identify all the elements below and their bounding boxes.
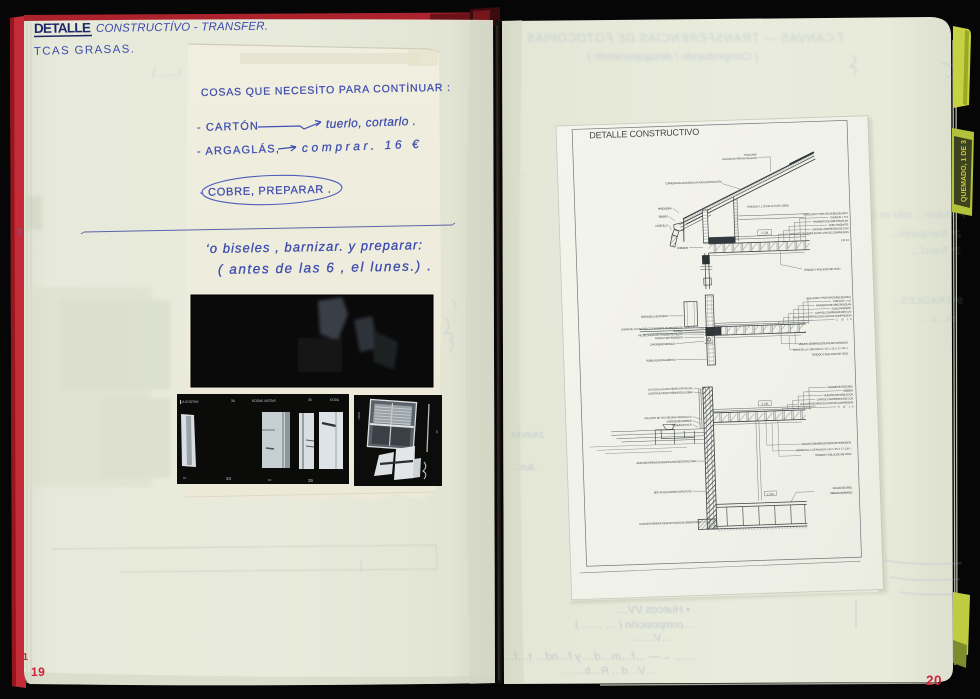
- svg-text:35: 35: [308, 478, 314, 483]
- svg-text:…… ←— …f…m…d… y f…nd… t…f…: …… ←— …f…m…d… y f…nd… t…f…: [503, 651, 696, 663]
- svg-text:34: 34: [226, 476, 232, 481]
- svg-text:MARQUESINA: MARQUESINA: [658, 206, 672, 210]
- svg-text:…V…d… R…b…….: …V…d… R…b…….: [561, 665, 656, 677]
- svg-text:MODELAN: MODELAN: [843, 388, 853, 392]
- svg-text:33: 33: [435, 430, 439, 434]
- svg-text:…composición ( … …… ): …composición ( … …… ): [575, 619, 694, 631]
- svg-text:2 Ø 16: 2 Ø 16: [841, 238, 850, 242]
- svg-text:DETALLE: DETALLE: [34, 20, 91, 36]
- svg-text:2º Transparen…: 2º Transparen…: [889, 229, 962, 240]
- svg-text:• Huecos VV….: • Huecos VV….: [614, 604, 690, 616]
- svg-text:HORMIGON H-175: HORMIGON H-175: [672, 423, 692, 428]
- svg-text:19: 19: [31, 665, 45, 679]
- svg-text:CONSTRUCTÍVO - TRANSFER.: CONSTRUCTÍVO - TRANSFER.: [96, 20, 268, 35]
- svg-text:20: 20: [926, 673, 942, 688]
- svg-text:1: 1: [23, 652, 29, 663]
- svg-text:▌A KODTMY: ▌A KODTMY: [180, 400, 200, 404]
- svg-text:2 Ø 16: 2 Ø 16: [836, 317, 852, 322]
- svg-text:QUEMADO, 1 DE 3: QUEMADO, 1 DE 3: [961, 140, 968, 202]
- svg-text:TABLERO: TABLERO: [658, 214, 668, 218]
- svg-text:35: 35: [308, 398, 312, 402]
- svg-text:…V…….: …V…….: [631, 632, 672, 644]
- svg-text:( Comprobando / desapareciendo: ( Comprobando / desapareciendo ): [587, 51, 758, 63]
- svg-text:KODA: KODA: [330, 398, 340, 402]
- svg-text:KODAK 400TMY: KODAK 400TMY: [252, 399, 277, 403]
- svg-text:9º FRÁGİLES…: 9º FRÁGİLES…: [892, 294, 963, 307]
- svg-text:TABLEADO NORMADO: TABLEADO NORMADO: [830, 490, 853, 495]
- svg-text:SOLADO DE GRES: SOLADO DE GRES: [832, 485, 852, 490]
- svg-text:3º Transf…: 3º Transf…: [911, 246, 961, 257]
- svg-text:KODTM•: KODTM•: [359, 560, 363, 572]
- svg-text:1 CM: 1 CM: [767, 492, 774, 496]
- svg-text:•••: •••: [183, 476, 186, 480]
- svg-text:1 CM: 1 CM: [761, 231, 769, 235]
- svg-text:…: …: [520, 168, 528, 177]
- svg-text:HORMIGON: HORMIGON: [677, 246, 688, 250]
- svg-text:2AVİVXA: 2AVİVXA: [511, 431, 545, 440]
- svg-text:CANECILLO: CANECILLO: [655, 223, 668, 227]
- svg-text:(……): (……): [152, 67, 182, 79]
- svg-text:5 Ø 16: 5 Ø 16: [838, 404, 854, 409]
- svg-text:KOD•: KOD•: [357, 412, 361, 420]
- svg-text:…Bch…: …Bch…: [512, 463, 542, 472]
- svg-text:1 CM: 1 CM: [761, 402, 769, 406]
- svg-text:•••: •••: [268, 478, 271, 482]
- svg-text:ch…s…: ch…s…: [921, 314, 957, 325]
- svg-text:T.CANVAS — TRANSFERENCİAS D: T.CANVAS — TRANSFERENCİAS DE FOTOCOPİAS: [527, 31, 845, 45]
